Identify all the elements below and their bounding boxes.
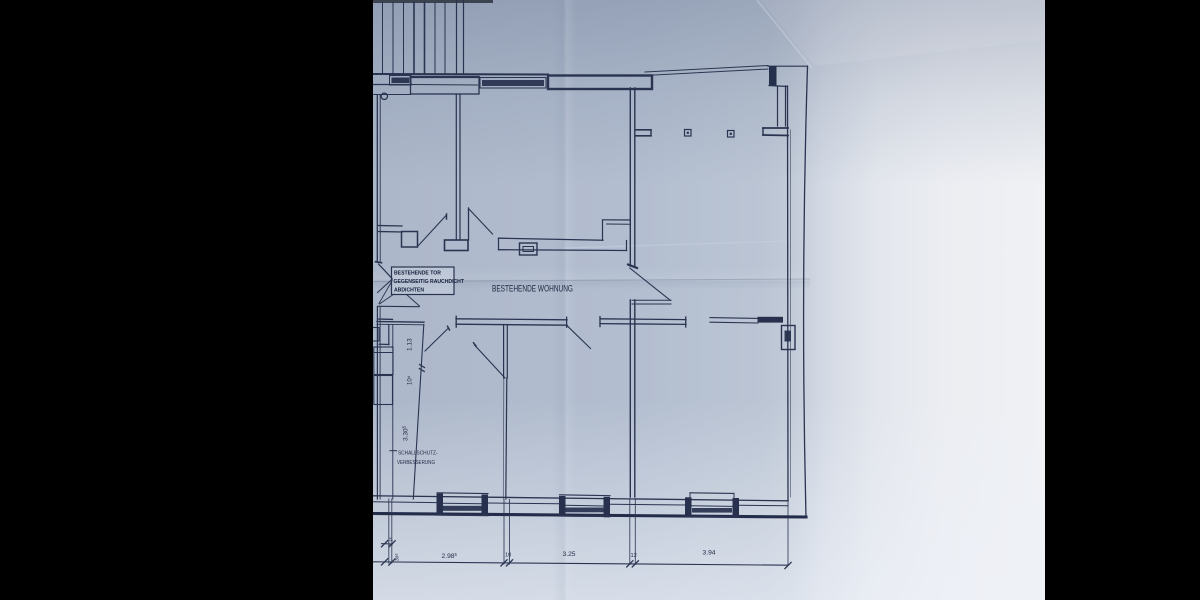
svg-text:GEGENSEITIG RAUCHDICHT: GEGENSEITIG RAUCHDICHT [394,279,465,285]
svg-text:BESTEHENDE TOR: BESTEHENDE TOR [394,271,441,277]
svg-text:SCHALLSCHUTZ-: SCHALLSCHUTZ- [398,451,438,457]
svg-text:1.13: 1.13 [407,338,414,351]
svg-text:BESTEHENDE WOHNUNG: BESTEHENDE WOHNUNG [492,284,573,294]
svg-text:3.94: 3.94 [703,550,716,557]
svg-text:10: 10 [505,553,511,559]
svg-text:ABDICHTEN: ABDICHTEN [394,288,424,294]
svg-text:VERBESSERUNG: VERBESSERUNG [397,460,435,466]
svg-text:12: 12 [631,553,637,559]
svg-text:3.25: 3.25 [563,551,576,558]
